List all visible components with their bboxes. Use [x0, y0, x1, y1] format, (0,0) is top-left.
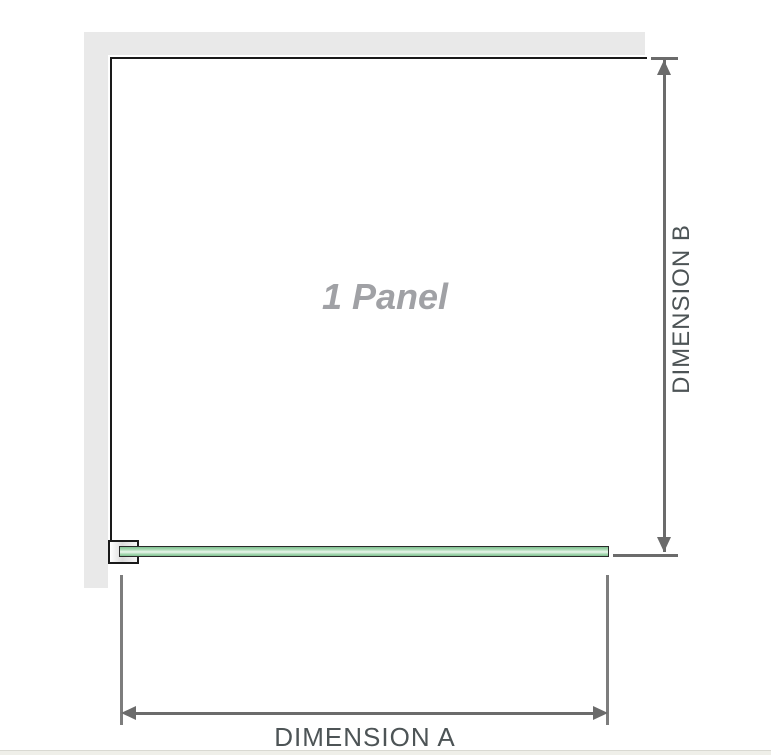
arrow-down-icon: [657, 537, 671, 552]
arrow-up-icon: [657, 60, 671, 75]
panel-count-label: 1 Panel: [322, 276, 448, 318]
dimension-b-bottom-tick: [613, 554, 678, 557]
dimension-a-line: [133, 712, 597, 715]
wall-top-band: [84, 32, 645, 55]
page-bottom-strip: [0, 750, 771, 755]
extension-line-left: [120, 575, 123, 725]
arrow-right-icon: [593, 706, 608, 720]
dimension-a-label: DIMENSION A: [274, 722, 455, 753]
panel-outline-left: [110, 57, 112, 541]
extension-line-right: [606, 575, 609, 725]
shower-panel-dimension-diagram: 1 Panel DIMENSION B DIMENSION A: [0, 0, 771, 755]
dimension-b-label: DIMENSION B: [668, 224, 696, 394]
arrow-left-icon: [121, 706, 136, 720]
glass-panel-bar: [119, 546, 609, 557]
panel-outline-top: [110, 57, 647, 59]
wall-left-strip: [84, 32, 108, 588]
dimension-b-line: [663, 60, 666, 552]
